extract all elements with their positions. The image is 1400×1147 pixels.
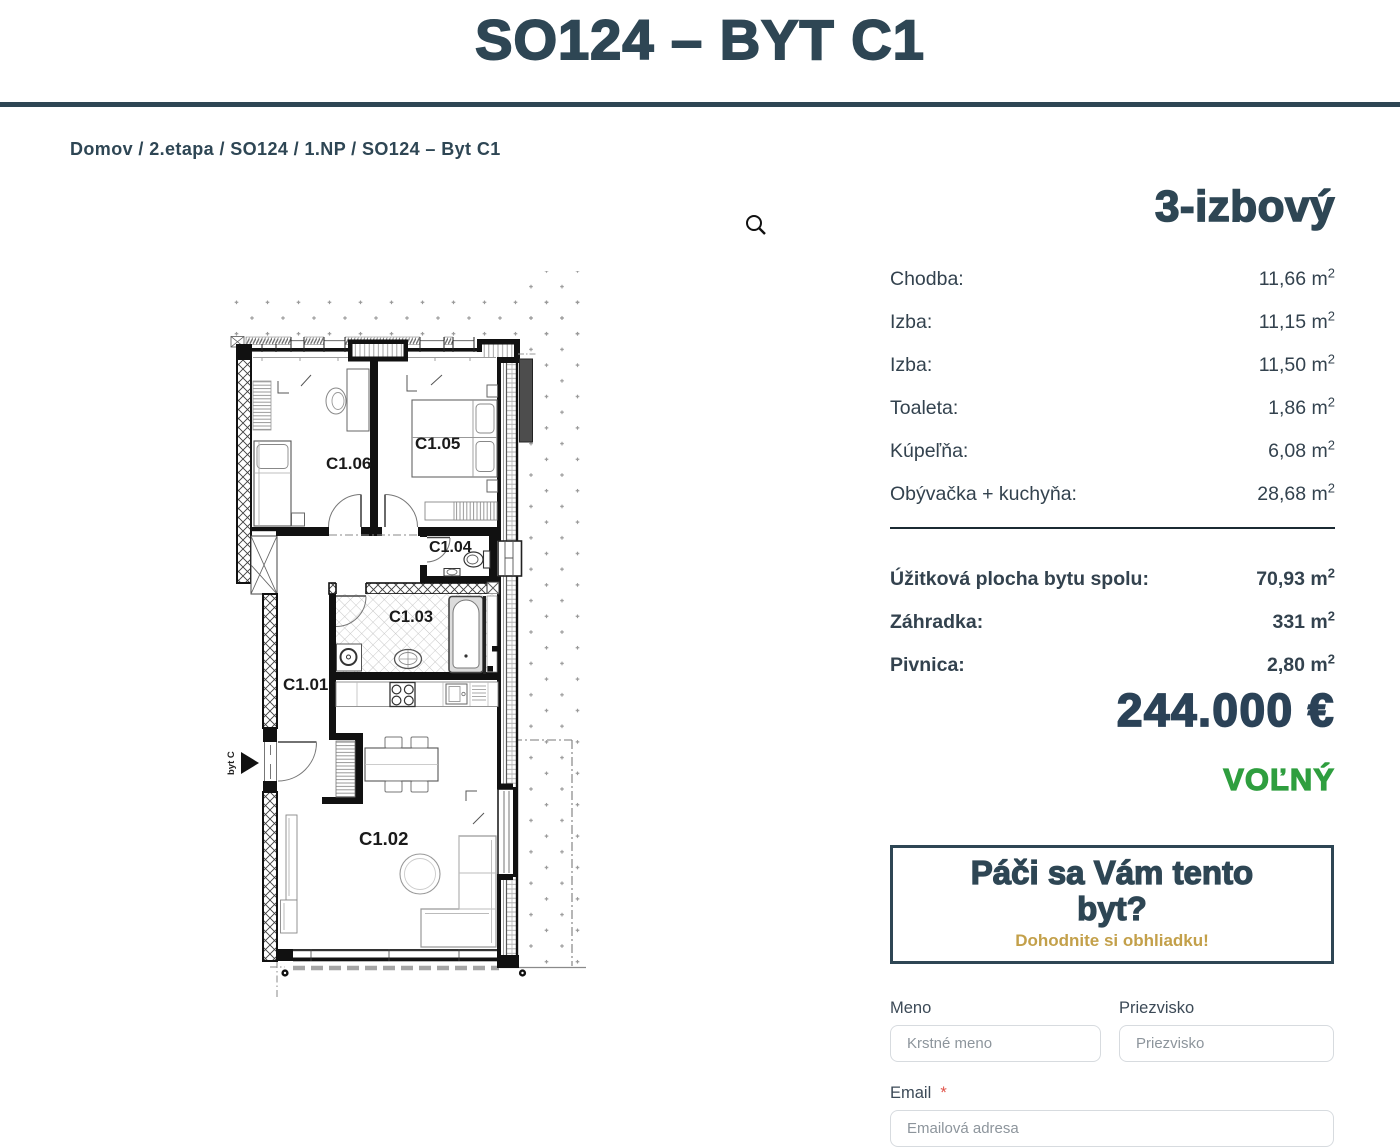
svg-text:byt C: byt C [226,751,237,775]
svg-text:C1.03: C1.03 [389,608,433,626]
svg-text:C1.04: C1.04 [429,539,472,556]
svg-text:C1.01: C1.01 [283,675,328,694]
svg-text:C1.02: C1.02 [359,828,408,849]
svg-text:C1.05: C1.05 [415,434,460,453]
svg-text:C1.06: C1.06 [326,454,371,473]
